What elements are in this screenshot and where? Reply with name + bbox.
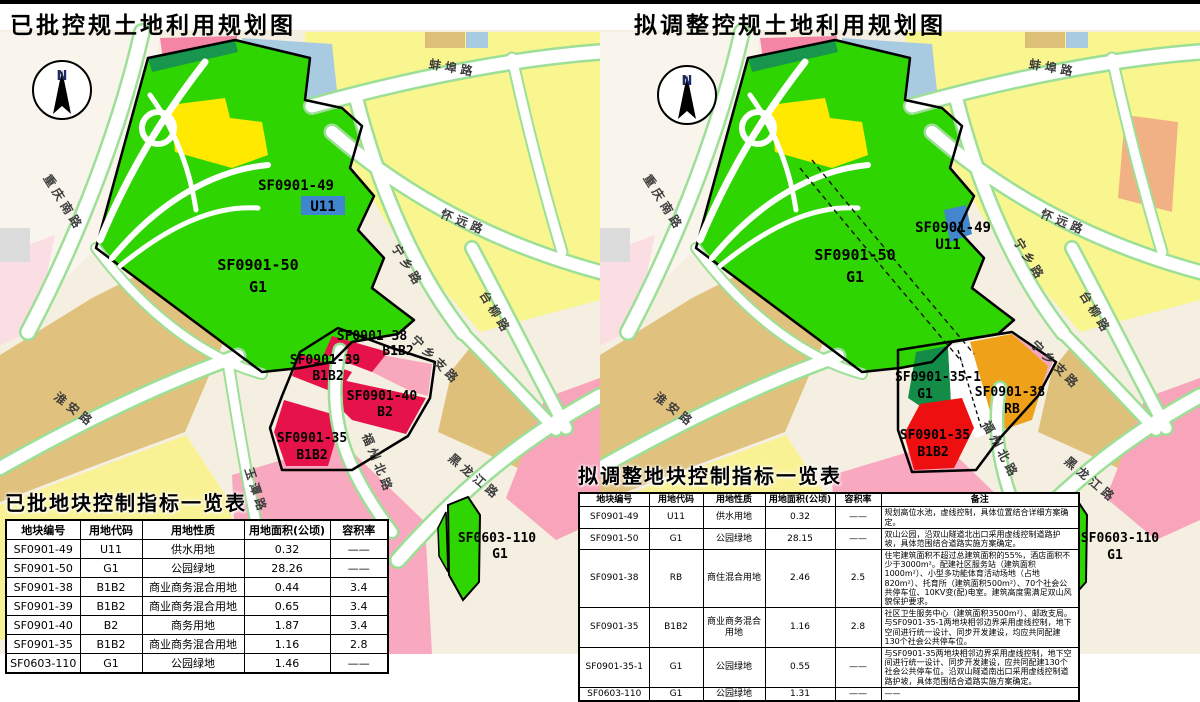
table-row: SF0603-110G1公园绿地1.46—— [6,654,388,674]
col-header: 容积率 [330,520,388,540]
table-cell: SF0901-50 [6,559,80,578]
table-cell: B1B2 [80,597,142,616]
compass-rose-r: N [658,66,716,124]
table-cell: SF0901-39 [6,597,80,616]
parcel-sf0901-40-code: SF0901-40 [347,389,418,404]
table-cell: SF0901-40 [6,616,80,635]
table-cell: 商业商务混合用地 [142,597,244,616]
table-cell: —— [330,540,388,559]
table-cell: 商业商务混合用地 [142,635,244,654]
table-cell: 与SF0901-35两地块相邻边界采用虚线控制，地下空间进行统一设计、同步开发建… [881,647,1079,687]
table-header-row: 地块编号 用地代码 用地性质 用地面积(公顷) 容积率 备注 [579,493,1079,507]
approved-indicators-table: 地块编号 用地代码 用地性质 用地面积(公顷) 容积率 SF0901-49U11… [5,519,389,674]
table-cell: 28.26 [244,559,330,578]
col-header: 用地代码 [80,520,142,540]
table-cell: 0.55 [765,647,835,687]
col-header: 地块编号 [579,493,649,507]
approved-table-title: 已批地块控制指标一览表 [5,487,391,516]
table-cell: 公园绿地 [703,687,765,701]
col-header: 用地面积(公顷) [244,520,330,540]
parcel-sf0901-35-code-r: SF0901-35 [900,428,970,443]
parcel-sf0901-35-code: SF0901-35 [277,431,347,446]
parcel-sf0901-50-code-r: SF0901-50 [814,246,895,264]
table-cell: 2.5 [835,550,881,608]
table-cell: 0.44 [244,578,330,597]
table-cell: U11 [649,507,703,528]
table-cell: —— [835,647,881,687]
table-cell: 0.65 [244,597,330,616]
table-cell: 3.4 [330,597,388,616]
table-cell: —— [330,559,388,578]
table-cell: 商业商务混合用地 [142,578,244,597]
parcel-sf0603-110-use: G1 [492,547,508,562]
left-map-title: 已批控规土地利用规划图 [10,6,296,40]
table-cell: G1 [649,528,703,549]
table-row: SF0901-40B2商务用地1.873.4 [6,616,388,635]
table-cell: SF0603-110 [6,654,80,674]
table-cell: 住宅建筑面积不超过总建筑面积的55%，酒店面积不少于3000m²。配建社区服务站… [881,550,1079,608]
table-cell: 公园绿地 [142,559,244,578]
parcel-sf0901-35-1-code: SF0901-35-1 [895,370,981,385]
parcel-sf0901-38-code-r: SF0901-38 [975,385,1046,400]
parcel-sf0901-40-use: B2 [377,405,393,420]
table-cell: B1B2 [80,635,142,654]
parcel-sf0901-38-use: B1B2 [382,344,413,359]
table-cell: 1.16 [244,635,330,654]
col-header: 地块编号 [6,520,80,540]
col-header: 用地性质 [142,520,244,540]
table-row: SF0901-50G1公园绿地28.26—— [6,559,388,578]
table-row: SF0901-35-1G1公园绿地0.55——与SF0901-35两地块相邻边界… [579,647,1079,687]
table-cell: 公园绿地 [703,528,765,549]
table-cell: SF0901-38 [579,550,649,608]
table-cell: G1 [80,654,142,674]
table-cell: 1.16 [765,608,835,648]
parcel-sf0901-39-use: B1B2 [312,369,343,384]
table-cell: 商住混合用地 [703,550,765,608]
table-cell: SF0603-110 [579,687,649,701]
table-cell: —— [330,654,388,674]
table-header-row: 地块编号 用地代码 用地性质 用地面积(公顷) 容积率 [6,520,388,540]
table-cell: —— [835,528,881,549]
table-row: SF0603-110G1公园绿地1.31———— [579,687,1079,701]
table-cell: 2.46 [765,550,835,608]
col-header: 用地性质 [703,493,765,507]
col-header: 用地代码 [649,493,703,507]
table-cell: 公园绿地 [703,647,765,687]
table-cell: SF0901-49 [579,507,649,528]
adjusted-indicators-panel: 拟调整地块控制指标一览表 地块编号 用地代码 用地性质 用地面积(公顷) 容积率… [578,460,1078,702]
parcel-sf0603-110-use-r: G1 [1107,548,1123,563]
col-header: 用地面积(公顷) [765,493,835,507]
table-cell: B2 [80,616,142,635]
table-cell: 3.4 [330,578,388,597]
table-cell: 0.32 [244,540,330,559]
parcel-sf0901-38-use-r: RB [1004,402,1020,417]
table-cell: 2.8 [835,608,881,648]
table-cell: —— [881,687,1079,701]
table-cell: 社区卫生服务中心（建筑面积3500m²）、邮政支局。与SF0901-35-1两地… [881,608,1079,648]
table-cell: 1.31 [765,687,835,701]
table-cell: 供水用地 [703,507,765,528]
adjusted-indicators-table: 地块编号 用地代码 用地性质 用地面积(公顷) 容积率 备注 SF0901-49… [578,492,1080,702]
table-cell: 0.32 [765,507,835,528]
table-cell: SF0901-38 [6,578,80,597]
table-cell: 公园绿地 [142,654,244,674]
parcel-sf0901-39-code: SF0901-39 [290,353,360,368]
parcel-sf0603-110-code: SF0603-110 [458,531,536,546]
table-row: SF0901-50G1公园绿地28.15——双山公园，沿双山隧道北出口采用虚线控… [579,528,1079,549]
right-map-title: 拟调整控规土地利用规划图 [634,6,946,40]
adjusted-table-title: 拟调整地块控制指标一览表 [578,460,1078,489]
table-row: SF0901-35B1B2商业商务混合用地1.162.8 [6,635,388,654]
parcel-sf0901-49-use-r: U11 [935,237,960,253]
table-cell: 2.8 [330,635,388,654]
table-cell: SF0901-35 [6,635,80,654]
table-cell: 28.15 [765,528,835,549]
table-row: SF0901-39B1B2商业商务混合用地0.653.4 [6,597,388,616]
table-cell: G1 [649,647,703,687]
table-row: SF0901-38B1B2商业商务混合用地0.443.4 [6,578,388,597]
col-header: 备注 [881,493,1079,507]
table-cell: 供水用地 [142,540,244,559]
compass-north-label: N [57,69,68,84]
compass-rose: N [33,61,91,119]
parcel-sf0901-35-1-use: G1 [917,387,933,402]
table-cell: B1B2 [80,578,142,597]
table-cell: 商业商务混合用地 [703,608,765,648]
table-cell: G1 [649,687,703,701]
table-cell: 商务用地 [142,616,244,635]
table-cell: U11 [80,540,142,559]
table-cell: —— [835,507,881,528]
parcel-sf0901-49-code: SF0901-49 [258,178,334,194]
table-row: SF0901-49U11供水用地0.32——规划高位水池，虚线控制，具体位置结合… [579,507,1079,528]
parcel-sf0603-110-code-r: SF0603-110 [1081,531,1159,546]
table-cell: RB [649,550,703,608]
table-cell: SF0901-50 [579,528,649,549]
table-cell: B1B2 [649,608,703,648]
table-cell: SF0901-35 [579,608,649,648]
table-row: SF0901-35B1B2商业商务混合用地1.162.8社区卫生服务中心（建筑面… [579,608,1079,648]
table-cell: 1.46 [244,654,330,674]
table-cell: 3.4 [330,616,388,635]
parcel-sf0901-35-use-r: B1B2 [917,445,948,460]
table-cell: G1 [80,559,142,578]
table-cell: 双山公园，沿双山隧道北出口采用虚线控制道路护坡，具体范围结合道路实施方案确定。 [881,528,1079,549]
parcel-sf0901-49-code-r: SF0901-49 [915,220,991,236]
parcel-sf0901-49-use: U11 [310,199,335,215]
table-row: SF0901-38RB商住混合用地2.462.5住宅建筑面积不超过总建筑面积的5… [579,550,1079,608]
table-row: SF0901-49U11供水用地0.32—— [6,540,388,559]
table-cell: —— [835,687,881,701]
table-cell: SF0901-35-1 [579,647,649,687]
table-cell: SF0901-49 [6,540,80,559]
table-cell: 1.87 [244,616,330,635]
top-border-bar [0,0,1200,4]
parcel-sf0901-50-code: SF0901-50 [217,256,298,274]
compass-north-label-r: N [682,74,693,89]
col-header: 容积率 [835,493,881,507]
parcel-sf0901-35-use: B1B2 [296,448,327,463]
parcel-sf0901-50-use: G1 [249,278,267,296]
table-cell: 规划高位水池，虚线控制，具体位置结合详细方案确定。 [881,507,1079,528]
parcel-sf0901-38-code: SF0901-38 [337,329,408,344]
parcel-sf0901-50-use-r: G1 [846,268,864,286]
approved-indicators-panel: 已批地块控制指标一览表 地块编号 用地代码 用地性质 用地面积(公顷) 容积率 … [5,487,391,674]
